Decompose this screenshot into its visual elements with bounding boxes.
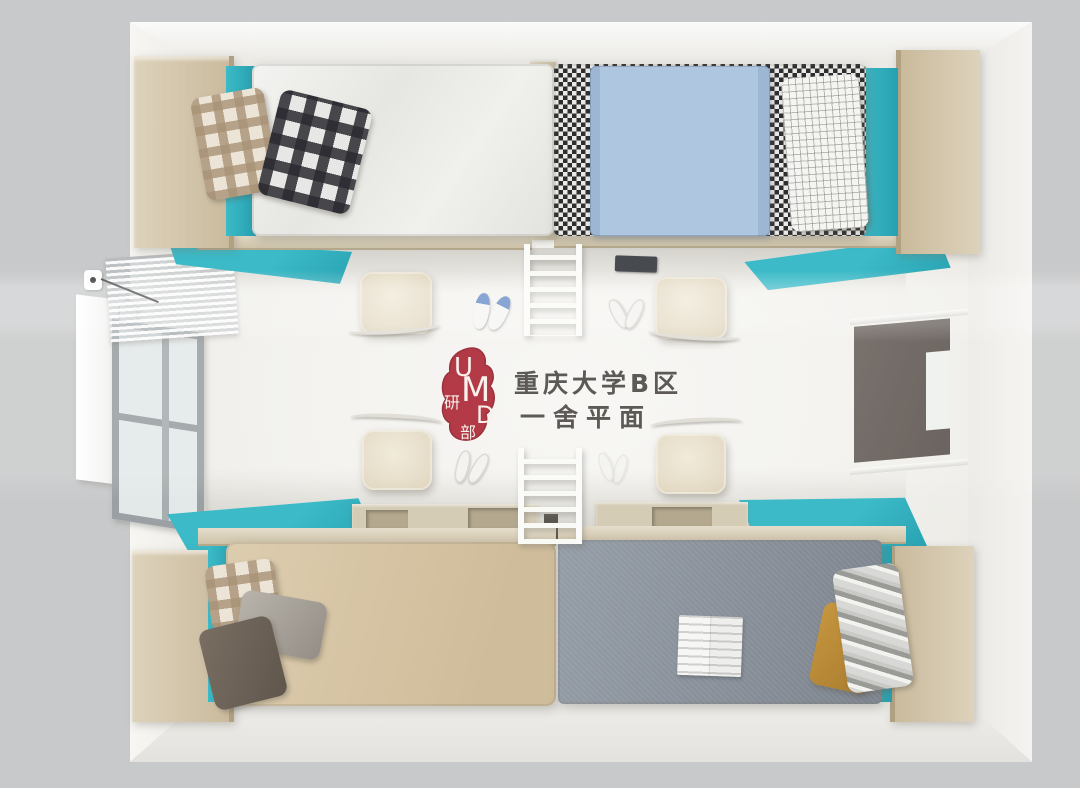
ladder-bottom xyxy=(518,448,582,544)
power-outlet xyxy=(84,270,102,290)
shelf-recess xyxy=(366,510,408,528)
blue-blanket xyxy=(590,66,770,236)
desk-bottom-left xyxy=(362,430,432,490)
shelf-recess xyxy=(468,508,524,528)
seal-char-bu: 部 xyxy=(460,423,476,442)
door-light-panel xyxy=(926,350,950,430)
window-mullion-vertical xyxy=(162,334,169,521)
door-opening xyxy=(850,309,968,477)
window xyxy=(112,319,204,534)
seal-letter-d: D xyxy=(476,401,494,429)
desk-bottom-right xyxy=(656,434,726,494)
seal-char-yan: 研 xyxy=(444,393,460,412)
shelf-recess xyxy=(652,507,712,526)
seal-logo: U M D 研 部 xyxy=(437,346,505,442)
window-mullion-horizontal xyxy=(119,412,197,431)
ladder-top xyxy=(524,244,582,336)
caption-line-1: 重庆大学B区 xyxy=(514,364,682,400)
wardrobe-top-right xyxy=(896,50,980,254)
laptop xyxy=(615,255,658,272)
open-magazine xyxy=(677,615,743,677)
dorm-room-render: U M D 研 部 重庆大学B区 一舍平面 xyxy=(0,0,1080,788)
pillow-grid-white xyxy=(781,73,870,232)
caption-line-2: 一舍平面 xyxy=(520,398,652,434)
